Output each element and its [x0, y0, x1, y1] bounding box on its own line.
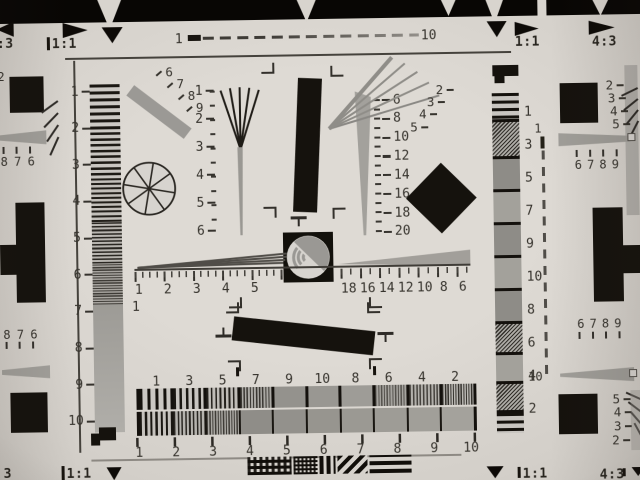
ticks [6, 341, 40, 349]
dash-scale-end: 10 [421, 29, 437, 42]
black-square [558, 394, 598, 435]
h-shape-bar [593, 207, 624, 301]
ticks [578, 331, 622, 339]
horizontal-bars-pattern [369, 455, 411, 474]
slanted-black-bar [232, 316, 376, 355]
scale-number: 10 [314, 373, 330, 386]
scale-number: 8 [1, 329, 12, 341]
band-slit [537, 0, 546, 19]
h-shape-arm [0, 245, 16, 275]
scale-number: 10 [463, 442, 479, 455]
black-square [560, 83, 599, 124]
fan-number: 3 [427, 96, 445, 109]
checker-pattern [247, 456, 291, 475]
scale-number: 3 [181, 375, 197, 388]
scale-number: 10 [417, 281, 433, 294]
scale-number: 4 [414, 371, 430, 384]
right-arrow-icon [589, 20, 615, 34]
top-border-line [65, 51, 511, 60]
vdash-first [540, 136, 544, 148]
t-mark [291, 216, 307, 226]
fan-number: 4 [614, 406, 632, 419]
fan-number: 2 [612, 434, 630, 447]
chart-canvas: :3 1:1 1:1 4:3 1 10 12345678910 6789 123… [0, 0, 640, 480]
aspect-label: :3 [0, 38, 14, 51]
scale-number: 20 [384, 224, 420, 239]
scale-number: 8 [0, 156, 10, 168]
scale-number: 8 [347, 372, 363, 385]
scale-number: 3 [189, 283, 205, 296]
scale-number: 5 [247, 282, 263, 295]
scale-number: 14 [379, 282, 395, 295]
scale-number: 6 [455, 281, 471, 294]
aspect-label: 4:3 [600, 468, 625, 480]
fan-number: 6 [155, 66, 173, 79]
wedge-tail [237, 147, 245, 235]
scale-number: 9 [612, 317, 623, 329]
vdash-end: 10 [528, 371, 543, 383]
scale-number: 4 [218, 282, 234, 295]
scale-number: 2 [168, 446, 184, 459]
t-block-stub [91, 433, 100, 445]
frame-bracket [367, 302, 380, 313]
down-triangle-icon [632, 467, 640, 476]
scale-number: 16 [360, 282, 376, 295]
t-block-stub [494, 76, 504, 83]
scale-number: 12 [383, 149, 419, 164]
scale-number: 2 [447, 371, 463, 384]
scale-number: 6 [381, 372, 397, 385]
diagonal-pattern [337, 455, 367, 473]
fan-number: 4 [419, 108, 437, 121]
scale-number: 7 [12, 156, 23, 168]
frame-bracket [228, 360, 241, 371]
white-square-marker [627, 133, 635, 141]
down-triangle-icon [487, 466, 504, 478]
partial-number: 2 [0, 71, 5, 83]
scale-number: 7 [15, 329, 26, 341]
scale-number: 6 [575, 318, 586, 330]
minor-ticks [210, 91, 217, 233]
right-fan-top-numbers: 2345 [600, 79, 637, 136]
black-square [9, 76, 44, 113]
scale-number: 2 [56, 121, 90, 136]
black-vertical-bar [293, 78, 322, 213]
ticks [576, 149, 620, 157]
h-shape-arm [623, 245, 640, 273]
left-edge-numbers-bottom: 876 [1, 328, 39, 341]
hscale-origin: 1 [132, 301, 140, 314]
scale-number: 6 [573, 159, 584, 171]
fan-number: 7 [166, 78, 184, 91]
scale-number: 8 [60, 341, 94, 356]
scale-number: 10 [61, 414, 95, 429]
scale-number: 8 [597, 158, 608, 170]
t-block [492, 65, 518, 76]
down-triangle-icon [107, 467, 122, 480]
scale-number: 3 [205, 446, 221, 459]
scale-number: 9 [610, 158, 621, 170]
scale-number: 18 [341, 282, 357, 295]
t-mark [215, 327, 231, 337]
aspect-label: 1:1 [515, 36, 540, 49]
frame-bracket [261, 63, 274, 74]
divider-bar [518, 467, 521, 478]
scale-number: 12 [398, 282, 414, 295]
t-mark [377, 332, 393, 342]
frame-bracket [330, 66, 343, 77]
left-resolution-wedge [90, 84, 125, 432]
aspect-label: 3 [4, 468, 13, 480]
pattern-block [247, 455, 411, 476]
burst-row-fine [137, 407, 477, 436]
tick-bar [373, 366, 376, 375]
right-edge-gray-band [630, 390, 640, 450]
spoked-wheel-icon [119, 158, 180, 219]
scale-number: 9 [426, 442, 442, 455]
gray-wedge [0, 130, 46, 145]
dash-scale-fade [203, 32, 419, 40]
scale-number: 3 [57, 158, 91, 173]
scale-number: 18 [383, 205, 419, 220]
t-block [99, 427, 116, 440]
scale-number: 6 [58, 268, 92, 283]
scale-number: 8 [436, 281, 452, 294]
tick-bar [236, 367, 239, 376]
aspect-label: 1:1 [67, 468, 92, 480]
scale-number: 6 [28, 328, 39, 340]
bowtie-triangle-icon [102, 27, 123, 43]
scale-number: 5 [215, 374, 231, 387]
right-resolution-wedge [492, 93, 524, 433]
hscale-left-numbers: 12345 [131, 282, 263, 297]
gray-wedge [2, 365, 50, 379]
fan-number: 2 [436, 84, 454, 97]
left-edge-numbers-top: 876 [0, 155, 37, 168]
frame-bracket [263, 207, 276, 218]
scale-number: 6 [26, 155, 37, 167]
right-arrow-icon [63, 23, 88, 38]
divider-bar [47, 37, 50, 50]
dash-scale-start: 1 [175, 33, 183, 46]
aspect-label: 1:1 [523, 467, 548, 480]
h-shape-bar [15, 202, 46, 302]
burst-row-coarse [136, 384, 476, 410]
fan-ne-numbers: 2345 [406, 82, 457, 138]
right-edge-numbers-top: 6789 [573, 158, 621, 171]
vdash-start: 1 [534, 123, 541, 135]
left-strip-scale: 12345678910 [56, 85, 95, 429]
vertical-bars-pattern [319, 456, 335, 474]
scale-number: 2 [160, 283, 176, 296]
scale-number: 14 [383, 168, 419, 183]
frame-bracket [332, 208, 345, 219]
white-square-marker [629, 369, 637, 377]
scale-number: 5 [58, 231, 92, 246]
scale-number: 4 [57, 195, 91, 210]
scale-number: 1 [56, 85, 90, 100]
bowtie-triangle-icon [487, 21, 507, 37]
scale-number: 7 [585, 159, 596, 171]
scale-number: 8 [600, 317, 611, 329]
scale-number: 7 [588, 318, 599, 330]
fan-number: 5 [410, 121, 428, 134]
scale-number: 2 [529, 402, 549, 416]
gray-wedge [560, 367, 634, 382]
scale-number: 1 [131, 284, 147, 297]
center-target [283, 232, 334, 283]
scale-number: 7 [59, 305, 93, 320]
test-chart-photo: :3 1:1 1:1 4:3 1 10 12345678910 6789 123… [0, 0, 640, 480]
fine-checker-pattern [293, 456, 317, 474]
aspect-label: 1:1 [52, 38, 77, 51]
dash-scale-first-dash [188, 35, 201, 41]
divider-bar [62, 466, 65, 480]
minor-ticks [374, 99, 382, 233]
left-arrow-icon [0, 22, 14, 37]
scale-number: 9 [281, 373, 297, 386]
right-edge-numbers-bottom: 6789 [575, 317, 623, 330]
divider-bar [623, 468, 626, 476]
frame-bracket [226, 302, 239, 313]
ticks [2, 146, 36, 154]
scale-number: 1 [131, 447, 147, 460]
aspect-label: 4:3 [592, 35, 617, 48]
scale-number: 1 [148, 375, 164, 388]
black-square [10, 392, 48, 433]
scale-number: 7 [248, 374, 264, 387]
scale-number: 9 [60, 378, 94, 393]
hscale-right-numbers: 181614121086 [341, 281, 471, 296]
fan-number: 3 [614, 420, 632, 433]
scale-number: 1 [524, 104, 544, 118]
